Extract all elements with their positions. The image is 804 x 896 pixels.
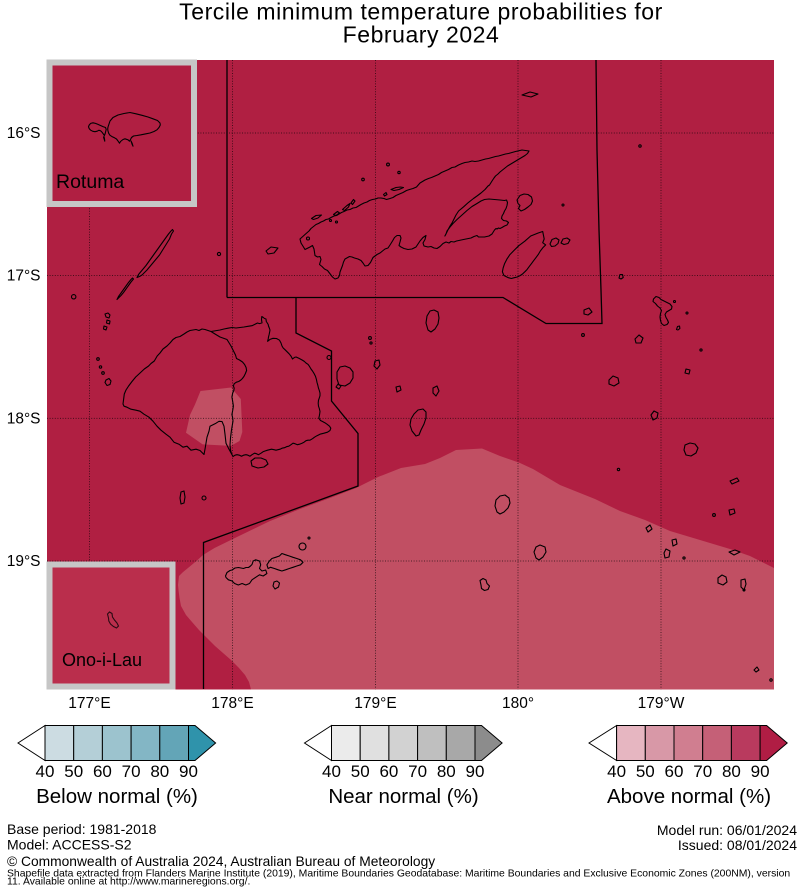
svg-text:Model run: 06/01/2024: Model run: 06/01/2024: [657, 822, 797, 838]
svg-text:Issued: 08/01/2024: Issued: 08/01/2024: [678, 837, 797, 853]
svg-text:Ono-i-Lau: Ono-i-Lau: [62, 650, 142, 670]
svg-text:90: 90: [179, 762, 198, 781]
svg-text:Near normal (%): Near normal (%): [328, 785, 478, 808]
svg-text:60: 60: [379, 762, 398, 781]
svg-text:Rotuma: Rotuma: [56, 171, 124, 193]
svg-text:70: 70: [408, 762, 427, 781]
svg-text:February 2024: February 2024: [343, 22, 500, 48]
svg-text:80: 80: [150, 762, 169, 781]
svg-text:11. Available online at http:/: 11. Available online at http://www.marin…: [7, 877, 250, 888]
svg-text:179°W: 179°W: [638, 695, 685, 712]
svg-text:90: 90: [466, 762, 485, 781]
svg-text:50: 50: [351, 762, 370, 781]
svg-text:Base period: 1981-2018: Base period: 1981-2018: [7, 821, 157, 837]
svg-text:18°S: 18°S: [7, 411, 41, 428]
svg-text:80: 80: [722, 762, 741, 781]
svg-text:70: 70: [122, 762, 141, 781]
svg-text:177°E: 177°E: [68, 695, 110, 712]
svg-text:178°E: 178°E: [211, 695, 253, 712]
svg-text:90: 90: [751, 762, 770, 781]
svg-text:40: 40: [607, 762, 626, 781]
svg-text:60: 60: [665, 762, 684, 781]
svg-text:50: 50: [64, 762, 83, 781]
svg-text:40: 40: [36, 762, 55, 781]
svg-text:60: 60: [93, 762, 112, 781]
svg-text:180°: 180°: [502, 695, 534, 712]
svg-text:19°S: 19°S: [7, 553, 41, 570]
svg-text:80: 80: [437, 762, 456, 781]
svg-text:Below normal (%): Below normal (%): [36, 785, 198, 808]
svg-text:179°E: 179°E: [354, 695, 396, 712]
svg-text:40: 40: [322, 762, 341, 781]
svg-text:70: 70: [693, 762, 712, 781]
svg-text:16°S: 16°S: [7, 125, 41, 142]
svg-text:17°S: 17°S: [7, 268, 41, 285]
svg-text:© Commonwealth of Australia 20: © Commonwealth of Australia 2024, Austra…: [7, 854, 435, 869]
svg-text:Model: ACCESS-S2: Model: ACCESS-S2: [7, 837, 132, 853]
svg-text:Above normal (%): Above normal (%): [607, 785, 771, 808]
svg-text:50: 50: [636, 762, 655, 781]
